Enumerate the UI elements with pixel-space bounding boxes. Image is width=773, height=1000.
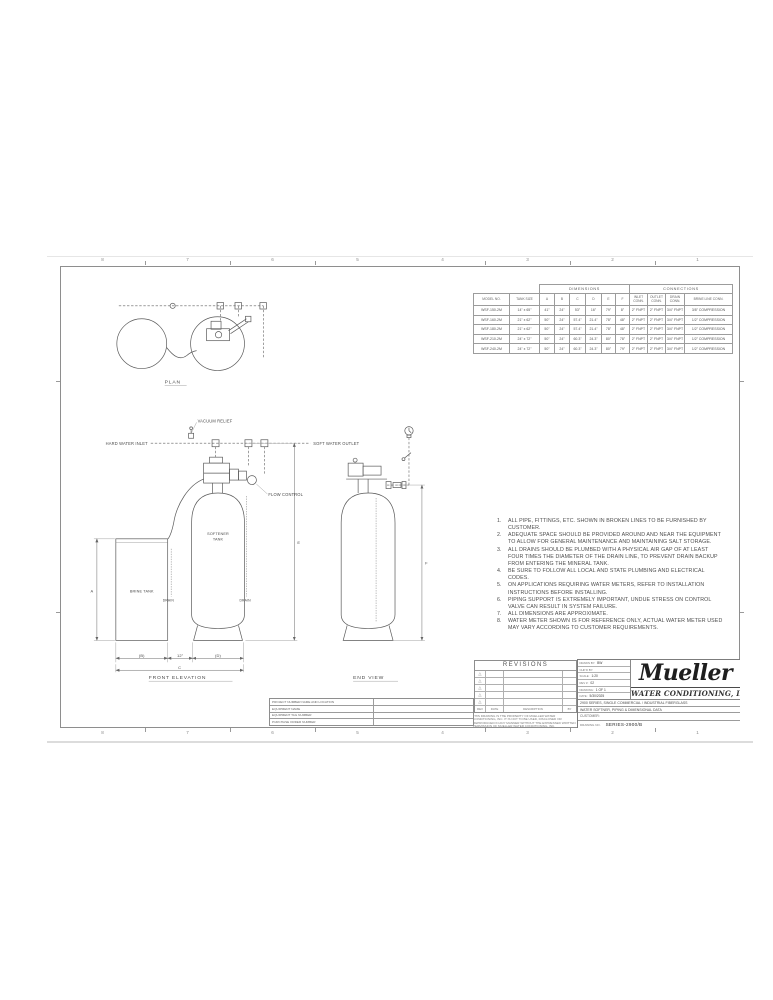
revision-delta-icon: △ [478,679,481,683]
dim-gap-label: 12" [177,653,184,658]
table-row: WSF-240-2M24" x 72"50"24"60.3"24.3"80"79… [474,344,733,354]
mueller-logo: Mueller [631,660,740,687]
border-tick [230,261,231,265]
dim-f-label: F [425,561,428,566]
front-elevation-view: VACUUM RELIEF HARD WATER INLET SOFT WATE… [91,418,360,681]
drawing-sheet-page: 8 7 6 5 4 3 2 1 8 7 6 5 4 3 2 1 [0,0,773,1000]
drawing-description-line1: 2900 SERIES, SINGLE COMMERCIAL / INDUSTR… [578,700,740,707]
zone-number: 6 [267,257,279,262]
revision-row: △ [475,678,576,685]
field-scale: SCALE:1:20 [578,673,630,680]
table-row: WSF-150-2M14" x 65"41"24"53"16"79"8"2" F… [474,306,733,316]
border-tick [315,728,316,732]
revision-row: △ [475,671,576,678]
note-item: 5.ON APPLICATIONS REQUIRING WATER METERS… [496,582,725,596]
revision-delta-icon: △ [478,686,481,690]
border-tick [145,261,146,265]
border-tick [740,612,744,613]
company-name: WATER CONDITIONING, INC. [631,687,740,699]
drawing-description-line2: WATER SOFTNER, PIPING & DIMENSIONAL DATA [578,707,740,714]
zone-number: 2 [607,730,619,735]
border-tick [655,261,656,265]
softener-tank-label: SOFTENER [207,532,229,536]
zone-number: 8 [97,257,109,262]
revisions-block: REVISIONS △ △ △ △ △ REV DATE DESCRIPTION… [474,660,577,713]
title-block: DRAWN BY:BW CHK'D BY: SCALE:1:20 REV #:0… [577,659,740,728]
table-header-row: MODEL NO.TANK SIZE AB CD EF INLET CONN.O… [474,294,733,306]
zone-number: 7 [182,730,194,735]
project-value-blank [374,699,473,705]
note-item: 6.PIPING SUPPORT IS EXTREMELY IMPORTANT,… [496,597,725,611]
table-row: WSF-210-2M24" x 72"50"24"60.3"24.3"80"78… [474,334,733,344]
note-item: 2.ADEQUATE SPACE SHOULD BE PROVIDED AROU… [496,532,725,546]
field-date: DATE:5/30/2025 [578,693,630,699]
note-item: 4.BE SURE TO FOLLOW ALL LOCAL AND STATE … [496,568,725,582]
revision-row: △ [475,685,576,692]
sheet-bottom-edge [47,741,753,743]
border-tick [485,261,486,265]
general-notes: 1.ALL PIPE, FITTINGS, ETC. SHOWN IN BROK… [496,518,725,633]
drain-label-left: DRAIN [163,599,175,603]
note-item: 8.WATER METER SHOWN IS FOR REFERENCE ONL… [496,618,725,632]
table-row: WSF-180-2M21" x 62"50"24"57.4"21.4"78"48… [474,325,733,335]
border-tick [740,381,744,382]
front-elevation-label: FRONT ELEVATION [149,675,207,681]
project-row: PURCHASE ORDER NUMBER [270,719,473,725]
hard-water-inlet-label: HARD WATER INLET [106,441,148,446]
zone-number: 2 [607,257,619,262]
table-row: WSF-160-2M21" x 62"50"24"57.4"21.4"78"48… [474,315,733,325]
group-dimensions: DIMENSIONS [540,285,630,294]
revision-row: △ [475,699,576,706]
project-value-blank [374,713,473,719]
proprietary-notice: THIS DRAWING IS THE PROPERTY OF MUELLER … [473,715,579,729]
revision-delta-icon: △ [478,672,481,676]
zone-number: 5 [352,730,364,735]
drawing-number-row: DRAWING NO. SERIES-2900/B [578,721,740,728]
plan-label: PLAN [165,379,181,385]
drain-label-right: DRAIN [239,599,251,603]
zone-number: 7 [182,257,194,262]
softener-tank-label2: TANK [213,537,224,541]
zone-number: 3 [522,257,534,262]
revisions-footer: REV DATE DESCRIPTION BY [475,706,576,712]
border-tick [230,728,231,732]
project-value-blank [374,706,473,712]
flow-control-label: FLOW CONTROL [268,492,303,497]
dim-b-label: (B) [139,653,145,658]
dim-e-label: E [297,540,300,545]
border-tick [315,261,316,265]
dim-a-label: A [91,589,94,594]
drawing-sheet: PLAN VACUUM RELIEF HARD WATER INLET S [60,266,740,728]
zone-number: 3 [522,730,534,735]
dim-c-label: C [178,665,181,670]
end-view-label: END VIEW [353,675,384,681]
project-row: PROJECT NUMBER NAME AND LOCATION [270,699,473,706]
zone-number: 6 [267,730,279,735]
zone-number: 4 [437,257,449,262]
sheet-top-edge [47,256,753,257]
table-group-header-row: DIMENSIONS CONNECTIONS [474,285,733,294]
end-view: F END VIEW [341,427,428,682]
dim-d-label: (D) [215,653,221,658]
note-item: 1.ALL PIPE, FITTINGS, ETC. SHOWN IN BROK… [496,518,725,532]
project-value-blank [374,719,473,725]
zone-number: 5 [352,257,364,262]
border-tick [145,728,146,732]
field-drawing: DRAWING:1 OF 1 [578,687,630,694]
note-item: 7.ALL DIMENSIONS ARE APPROXIMATE. [496,611,725,618]
revisions-title: REVISIONS [475,661,576,671]
field-chkd-by: CHK'D BY: [578,667,630,674]
revision-delta-icon: △ [478,693,481,697]
project-row: EQUIPMENT TAG NUMBER [270,713,473,720]
zone-number: 1 [692,730,704,735]
brine-tank-label: BRINE TANK [130,590,154,594]
border-tick [655,728,656,732]
soft-water-outlet-label: SOFT WATER OUTLET [313,441,359,446]
revision-delta-icon: △ [478,700,481,704]
zone-number: 4 [437,730,449,735]
vacuum-relief-label: VACUUM RELIEF [198,418,233,423]
zone-number: 1 [692,257,704,262]
revision-row: △ [475,692,576,699]
note-item: 3.ALL DRAINS SHOULD BE PLUMBED WITH A PH… [496,547,725,568]
zone-number: 8 [97,730,109,735]
project-info-block: PROJECT NUMBER NAME AND LOCATION EQUIPME… [269,698,474,726]
project-row: EQUIPMENT NAME [270,706,473,713]
border-tick [570,261,571,265]
drawing-number: SERIES-2900/B [606,722,643,727]
title-block-fields: DRAWN BY:BW CHK'D BY: SCALE:1:20 REV #:0… [578,660,631,699]
field-drawn-by: DRAWN BY:BW [578,660,630,667]
field-rev: REV #:02 [578,680,630,687]
customer-field: CUSTOMER: [578,713,740,721]
group-connections: CONNECTIONS [630,285,733,294]
plan-view: PLAN [117,303,267,386]
spec-table: DIMENSIONS CONNECTIONS MODEL NO.TANK SIZ… [473,284,733,354]
